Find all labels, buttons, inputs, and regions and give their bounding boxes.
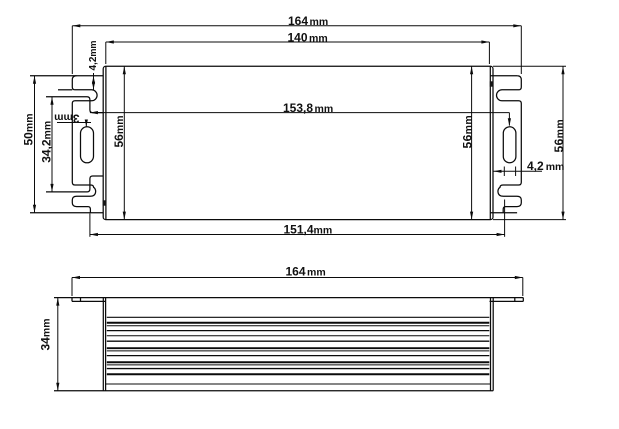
svg-text:56mm: 56mm <box>552 119 566 153</box>
svg-text:151,4mm: 151,4mm <box>284 222 333 236</box>
svg-text:56mm: 56mm <box>460 115 474 149</box>
svg-text:56mm: 56mm <box>112 115 126 147</box>
svg-text:34,2mm: 34,2mm <box>40 121 54 163</box>
svg-text:164mm: 164mm <box>286 264 326 278</box>
svg-text:153,8mm: 153,8mm <box>283 101 333 115</box>
svg-text:4,2mm: 4,2mm <box>88 41 99 71</box>
svg-text:3mm: 3mm <box>54 112 79 126</box>
svg-text:4,2mm: 4,2mm <box>527 159 564 173</box>
svg-text:34mm: 34mm <box>39 318 53 350</box>
svg-text:50mm: 50mm <box>21 113 35 145</box>
